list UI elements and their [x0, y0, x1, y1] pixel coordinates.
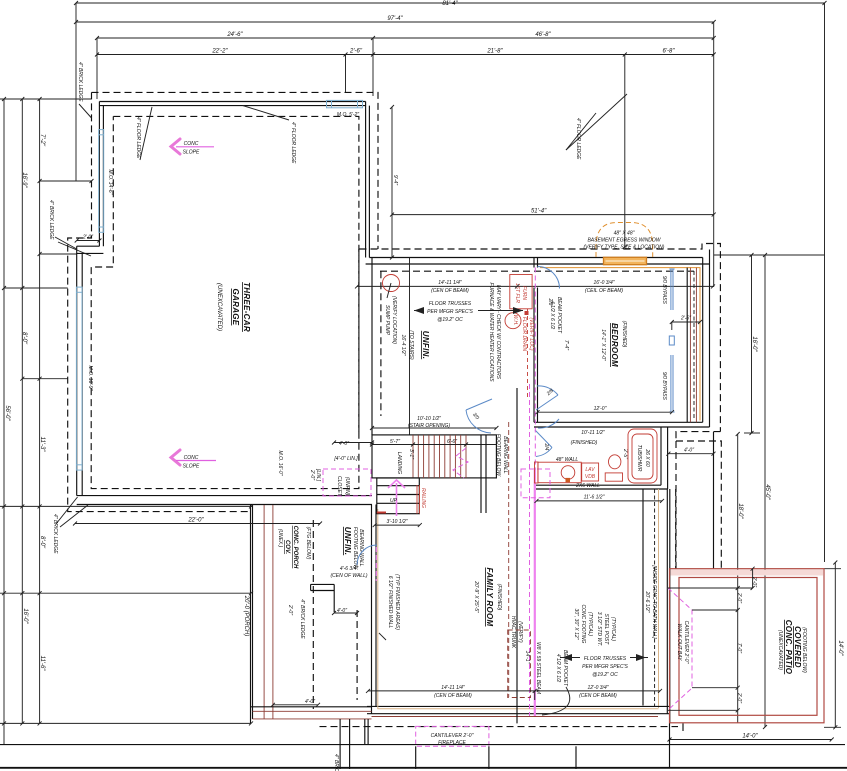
svg-text:CANTILEVER 2'-0": CANTILEVER 2'-0" — [683, 621, 689, 664]
svg-text:MAY VARY - CHECK W/ CONTRACTOR: MAY VARY - CHECK W/ CONTRACTORS — [495, 285, 501, 380]
svg-text:(UNEXCAVATED): (UNEXCAVATED) — [216, 283, 222, 331]
svg-text:(FINISHED): (FINISHED) — [571, 440, 598, 446]
svg-text:THREE-CAR: THREE-CAR — [242, 282, 251, 332]
svg-text:45'-0": 45'-0" — [764, 484, 770, 500]
svg-text:6 1/2" FINISHED WALL: 6 1/2" FINISHED WALL — [387, 576, 393, 629]
svg-text:20'-6 1/2": 20'-6 1/2" — [644, 590, 650, 612]
svg-text:14'-11 1/4": 14'-11 1/4" — [441, 685, 465, 691]
svg-text:30", 30" X 12": 30", 30" X 12" — [573, 609, 579, 640]
svg-text:(CEN OF BEAM): (CEN OF BEAM) — [434, 693, 472, 699]
svg-text:(TO STAIRS): (TO STAIRS) — [408, 330, 414, 360]
svg-text:4" BRICK LEDGE: 4" BRICK LEDGE — [299, 599, 305, 639]
svg-text:4" BRICK LEDGE: 4" BRICK LEDGE — [333, 754, 339, 771]
svg-text:M.O. 5'-2": M.O. 5'-2" — [337, 112, 359, 118]
svg-text:(FINISHED): (FINISHED) — [621, 321, 627, 348]
svg-text:[INSIDE CONC TO BATH WALL]: [INSIDE CONC TO BATH WALL] — [651, 564, 657, 639]
svg-text:BASEMENT EGRESS WINDOW: BASEMENT EGRESS WINDOW — [587, 238, 661, 244]
svg-text:FURN: FURN — [521, 286, 527, 300]
svg-text:16'-0 3/4": 16'-0 3/4" — [593, 280, 614, 286]
svg-text:22'-2": 22'-2" — [211, 49, 228, 55]
svg-text:2'-0": 2'-0" — [82, 235, 93, 241]
svg-text:16'-4 1/2": 16'-4 1/2" — [400, 334, 406, 355]
svg-text:2'-0": 2'-0" — [736, 592, 742, 603]
svg-text:(FINISHED): (FINISHED) — [496, 584, 502, 611]
svg-text:(TYPICAL): (TYPICAL) — [587, 612, 593, 637]
svg-text:4" FLOOR LEDGE: 4" FLOOR LEDGE — [135, 117, 141, 159]
svg-text:CONC: CONC — [184, 455, 199, 461]
svg-text:CONC. PORCH: CONC. PORCH — [292, 526, 298, 569]
svg-text:4'-0": 4'-0" — [684, 448, 694, 454]
svg-text:COV.: COV. — [284, 540, 290, 554]
svg-text:4'-6 3/4": 4'-6 3/4" — [340, 566, 359, 572]
svg-text:CONC FOOTING: CONC FOOTING — [580, 605, 586, 644]
svg-text:[4'-0" LIN.]: [4'-0" LIN.] — [333, 456, 358, 462]
svg-text:[LIN.]: [LIN.] — [315, 468, 321, 482]
svg-text:7'-2": 7'-2" — [39, 134, 45, 147]
svg-text:4'-0": 4'-0" — [339, 441, 349, 447]
svg-text:6'-6": 6'-6" — [447, 439, 457, 445]
svg-text:11'-6": 11'-6" — [39, 656, 45, 672]
svg-text:M.O. 16'-9": M.O. 16'-9" — [87, 366, 93, 391]
svg-text:FLOOR TRUSSES: FLOOR TRUSSES — [429, 301, 472, 307]
svg-text:8'-0": 8'-0" — [39, 536, 45, 549]
svg-text:CONC: CONC — [184, 141, 199, 147]
svg-text:FURNACE & WATER HEATER LOCATIO: FURNACE & WATER HEATER LOCATIONS — [488, 282, 494, 382]
svg-text:(CEN OF BEAM): (CEN OF BEAM) — [579, 693, 617, 699]
svg-text:3 1/2" STD WT.: 3 1/2" STD WT. — [596, 612, 602, 646]
svg-text:48" WALL: 48" WALL — [556, 457, 578, 463]
svg-text:BEARING WALL: BEARING WALL — [502, 436, 508, 474]
svg-text:14'-1": 14'-1" — [524, 651, 530, 664]
svg-text:20'-0 (PORCH): 20'-0 (PORCH) — [243, 595, 249, 637]
svg-text:10'-10 1/2": 10'-10 1/2" — [417, 416, 441, 422]
svg-text:(STAIR OPENING): (STAIR OPENING) — [408, 423, 450, 429]
svg-text:22'-0": 22'-0" — [187, 518, 204, 524]
svg-text:6'-8": 6'-8" — [663, 49, 676, 55]
svg-text:48" X 48": 48" X 48" — [614, 231, 635, 237]
svg-text:(UNFIN): (UNFIN) — [344, 477, 350, 496]
svg-text:2'-6": 2'-6" — [349, 49, 363, 55]
svg-text:LANDING: LANDING — [396, 452, 402, 474]
svg-text:12'-0": 12'-0" — [594, 406, 607, 412]
svg-text:UNFIN.: UNFIN. — [421, 331, 430, 359]
svg-text:M.O. 14'-6": M.O. 14'-6" — [107, 170, 113, 195]
svg-text:UP: UP — [390, 498, 398, 504]
svg-text:LAV: LAV — [585, 467, 595, 473]
svg-text:BEARING WALL: BEARING WALL — [358, 529, 364, 567]
svg-text:PER MFGR SPEC'S: PER MFGR SPEC'S — [582, 664, 628, 670]
svg-text:24'-6": 24'-6" — [226, 32, 243, 38]
svg-text:W.H.: W.H. — [512, 315, 518, 326]
svg-text:COVERED: COVERED — [793, 626, 802, 668]
svg-text:2'-5": 2'-5" — [622, 448, 628, 459]
svg-text:2'-6": 2'-6" — [680, 316, 691, 322]
svg-text:16'-0": 16'-0" — [22, 608, 28, 624]
svg-text:11'-3": 11'-3" — [39, 437, 45, 453]
svg-text:3'-1": 3'-1" — [408, 449, 414, 459]
svg-text:CONC. PATIO: CONC. PATIO — [784, 620, 793, 675]
svg-text:7'-0": 7'-0" — [736, 643, 742, 653]
svg-text:(TYPICAL): (TYPICAL) — [610, 617, 616, 642]
svg-text:CLOSET: CLOSET — [336, 476, 342, 497]
svg-text:9'-4": 9'-4" — [392, 175, 398, 185]
svg-text:SLOPE: SLOPE — [183, 464, 200, 470]
svg-text:18'-0": 18'-0" — [737, 503, 743, 519]
svg-text:(CEIL OF BEAM): (CEIL OF BEAM) — [585, 288, 623, 294]
svg-text:HVAC TRUNK: HVAC TRUNK — [510, 616, 516, 649]
svg-text:11'-6 1/2": 11'-6 1/2" — [584, 495, 605, 501]
svg-text:5'-7": 5'-7" — [390, 439, 400, 445]
svg-text:4" BRICK LEDGE: 4" BRICK LEDGE — [48, 200, 54, 240]
svg-text:2'-0": 2'-0" — [736, 692, 742, 703]
svg-text:9/0 BYPASS: 9/0 BYPASS — [661, 372, 667, 401]
svg-text:(VERIFY): (VERIFY) — [517, 621, 523, 643]
svg-text:12'-0 3/4": 12'-0 3/4" — [587, 685, 608, 691]
svg-text:4'-0": 4'-0" — [305, 699, 315, 705]
svg-text:10'-11 1/2": 10'-11 1/2" — [581, 430, 605, 436]
svg-text:4 1/2 X 6 1/2: 4 1/2 X 6 1/2 — [549, 301, 555, 330]
svg-text:W8 X 59 STEEL BEAM: W8 X 59 STEEL BEAM — [535, 642, 541, 695]
svg-text:SUMP PUMP: SUMP PUMP — [384, 305, 390, 336]
svg-text:GARAGE: GARAGE — [231, 289, 240, 326]
svg-text:M.O. 16'-0": M.O. 16'-0" — [277, 451, 283, 476]
svg-text:(FTG BELOW): (FTG BELOW) — [305, 527, 311, 560]
svg-text:4 1/2 X 6 1/2: 4 1/2 X 6 1/2 — [555, 654, 561, 683]
svg-text:VDB: VDB — [585, 474, 596, 480]
svg-text:WALK OUT BAY: WALK OUT BAY — [676, 623, 682, 661]
svg-text:2X6 WALL: 2X6 WALL — [575, 483, 600, 489]
svg-text:51'-4": 51'-4" — [531, 209, 547, 215]
svg-text:26 X 60: 26 X 60 — [644, 448, 650, 466]
svg-text:TUB/SHWR: TUB/SHWR — [636, 445, 642, 472]
svg-text:RAILING: RAILING — [420, 488, 426, 508]
svg-text:(UNEXCAVATED): (UNEXCAVATED) — [777, 630, 783, 670]
svg-text:STEEL POST: STEEL POST — [603, 614, 609, 646]
svg-text:2'-0": 2'-0" — [751, 576, 757, 587]
svg-text:14'-0": 14'-0" — [742, 734, 758, 740]
svg-text:FOOTING BELOW: FOOTING BELOW — [495, 434, 501, 478]
svg-text:(VERIFY LOCATION): (VERIFY LOCATION) — [391, 296, 397, 344]
svg-text:4" FLOOR LEDGE: 4" FLOOR LEDGE — [290, 122, 296, 164]
svg-text:9/0 BYPASS: 9/0 BYPASS — [661, 276, 667, 305]
svg-text:PER MFGR SPEC'S: PER MFGR SPEC'S — [427, 309, 473, 315]
svg-text:(CEN OF BEAM): (CEN OF BEAM) — [431, 288, 469, 294]
svg-text:3'-10 1/2": 3'-10 1/2" — [386, 519, 407, 525]
svg-text:14'-1" X 12'-0": 14'-1" X 12'-0" — [600, 329, 606, 361]
svg-text:UNFIN.: UNFIN. — [343, 527, 352, 555]
svg-text:BEAM POCKET: BEAM POCKET — [556, 297, 562, 334]
svg-text:BEAM POCKET: BEAM POCKET — [562, 650, 568, 687]
svg-text:4" BRICK LEDGE: 4" BRICK LEDGE — [77, 62, 83, 102]
svg-text:4" BRICK LEDGE: 4" BRICK LEDGE — [52, 514, 58, 554]
svg-text:(TYP FINISHED AREAS): (TYP FINISHED AREAS) — [394, 574, 400, 630]
svg-text:16'-0": 16'-0" — [751, 336, 757, 352]
svg-text:14'-11 1/4": 14'-11 1/4" — [438, 280, 462, 286]
svg-text:@19.2" OC: @19.2" OC — [437, 317, 463, 323]
svg-text:CANTILEVER 2'-0": CANTILEVER 2'-0" — [431, 733, 474, 739]
svg-text:16'-9": 16'-9" — [21, 172, 27, 188]
svg-text:2/4: 2/4 — [543, 443, 549, 451]
svg-text:97'-4": 97'-4" — [387, 16, 403, 22]
svg-text:BEDROOM: BEDROOM — [610, 323, 619, 367]
svg-text:56'-0": 56'-0" — [4, 405, 10, 421]
svg-text:FLOOR TRUSSES: FLOOR TRUSSES — [584, 656, 627, 662]
svg-text:(CEN OF WALL): (CEN OF WALL) — [330, 573, 367, 579]
svg-text:2'-0": 2'-0" — [287, 604, 293, 615]
svg-text:46'-8": 46'-8" — [535, 32, 551, 38]
svg-text:(UNEX.): (UNEX.) — [277, 529, 283, 548]
svg-text:(VERIFY LOC): (VERIFY LOC) — [528, 318, 534, 351]
svg-text:21'-8": 21'-8" — [486, 49, 503, 55]
svg-text:4" FLOOR LEDGE: 4" FLOOR LEDGE — [575, 118, 581, 160]
svg-text:81'-4": 81'-4" — [442, 1, 458, 7]
svg-text:8'-0": 8'-0" — [21, 332, 27, 345]
svg-text:@19.2" OC: @19.2" OC — [592, 672, 618, 678]
svg-text:7'-4": 7'-4" — [563, 340, 569, 350]
svg-text:2'-0": 2'-0" — [309, 469, 315, 480]
svg-text:14'-0": 14'-0" — [837, 640, 843, 656]
svg-text:20'-9" X 25'-5": 20'-9" X 25'-5" — [473, 580, 479, 613]
svg-text:SLOPE: SLOPE — [183, 150, 200, 156]
svg-text:(FOOTING BELOW): (FOOTING BELOW) — [801, 627, 807, 673]
svg-text:FAMILY ROOM: FAMILY ROOM — [485, 567, 494, 626]
svg-text:FLOOR DRAIN: FLOOR DRAIN — [521, 317, 527, 352]
